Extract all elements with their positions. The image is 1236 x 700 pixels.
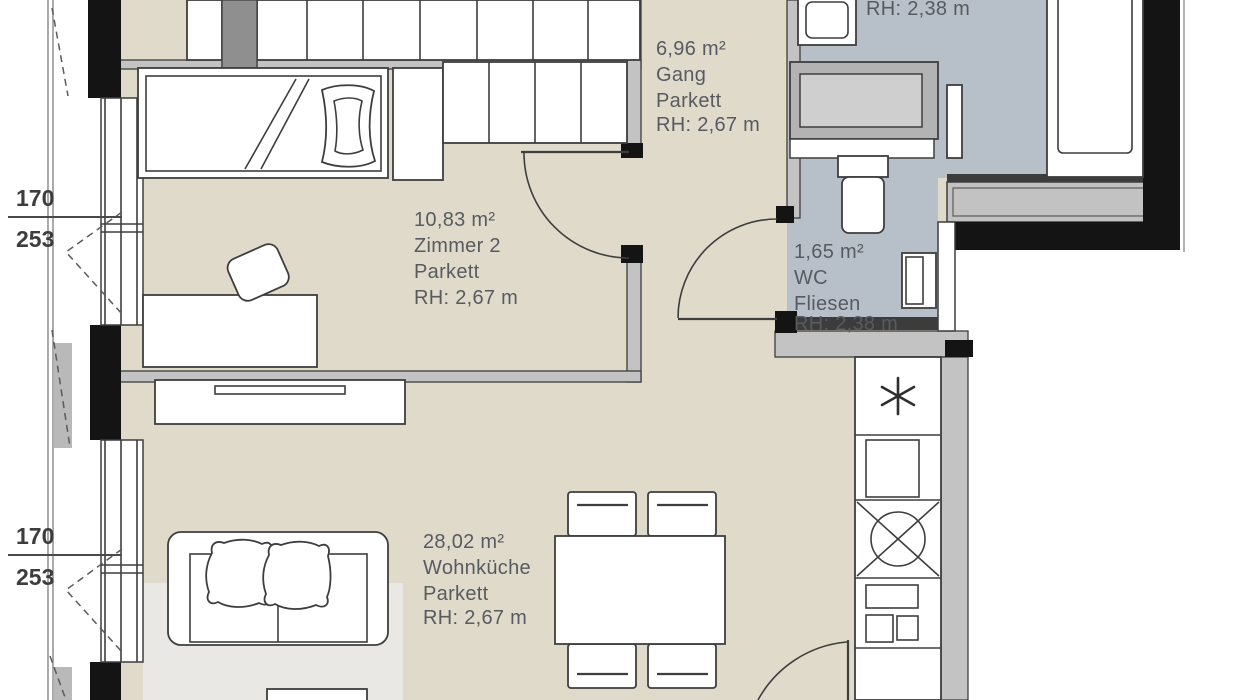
- nightstand: [393, 68, 443, 180]
- door-jamb: [621, 245, 643, 263]
- outside-area: [968, 340, 1236, 700]
- dining-chair: [648, 492, 716, 536]
- bathtub: [1047, 0, 1143, 177]
- wall-black-right: [1143, 0, 1180, 250]
- room-name: WC: [794, 267, 828, 289]
- wall-black-kitchen-corner: [945, 340, 973, 357]
- vanity-counter: [790, 62, 938, 139]
- dining-chair: [568, 644, 636, 688]
- desk: [143, 295, 317, 367]
- dimension-label: 253: [16, 226, 54, 252]
- room-area: 10,83 m²: [414, 209, 495, 231]
- floor-plan-page: 170 253 170 253 6,96 m² Gang Parkett RH:…: [0, 0, 1236, 700]
- dining-table: [555, 536, 725, 644]
- room-floor: Fliesen: [794, 293, 861, 315]
- room-area: 1,65 m²: [794, 241, 864, 263]
- wardrobe-zimmer2: [443, 62, 627, 143]
- dining-chair: [568, 492, 636, 536]
- floor-plan-svg: 170 253 170 253 6,96 m² Gang Parkett RH:…: [0, 0, 1236, 700]
- dimension-label: 170: [16, 185, 54, 211]
- wall-black-left-2: [90, 325, 121, 440]
- wall-black-left-3: [90, 662, 121, 700]
- room-name: Zimmer 2: [414, 235, 501, 257]
- room-floor: Parkett: [414, 261, 480, 283]
- balcony-pier: [54, 667, 72, 700]
- sofa-pillow: [263, 542, 330, 609]
- room-label-bad-height: RH: 2,38 m: [866, 0, 970, 20]
- door-jamb: [776, 206, 794, 223]
- bed: [138, 68, 388, 178]
- washbasin: [798, 0, 856, 45]
- outside-area: [955, 250, 1236, 342]
- wall-wc-right: [938, 222, 955, 331]
- sofa: [168, 532, 388, 645]
- coffee-table: [267, 689, 367, 700]
- wall-kitchen-right: [941, 357, 968, 700]
- wall-black-left-1: [88, 0, 121, 98]
- room-area: 28,02 m²: [423, 531, 504, 553]
- room-height: RH: 2,67 m: [656, 114, 760, 136]
- room-name: Wohnküche: [423, 557, 531, 579]
- room-height: RH: 2,67 m: [414, 287, 518, 309]
- dimension-label: 170: [16, 523, 54, 549]
- dining-chair: [648, 644, 716, 688]
- pipe-shaft: [947, 85, 962, 158]
- window-left-1: [101, 98, 143, 325]
- room-name: Gang: [656, 64, 706, 86]
- window-left-2: [101, 440, 143, 662]
- toilet: [838, 156, 888, 233]
- dimension-label: 253: [16, 564, 54, 590]
- wall-black-ledge: [950, 222, 1180, 250]
- room-height: RH: 2,67 m: [423, 607, 527, 629]
- room-floor: Parkett: [423, 583, 489, 605]
- wc-niche-window: [902, 253, 936, 308]
- room-area: 6,96 m²: [656, 38, 726, 60]
- room-height: RH: 2,38 m: [794, 313, 898, 335]
- wall-zimmer2-gang-lower: [627, 253, 641, 382]
- kitchen-counter: [855, 357, 941, 700]
- sideboard: [155, 380, 405, 424]
- room-floor: Parkett: [656, 90, 722, 112]
- window-swing-dash: [52, 8, 68, 96]
- door-jamb: [621, 143, 643, 158]
